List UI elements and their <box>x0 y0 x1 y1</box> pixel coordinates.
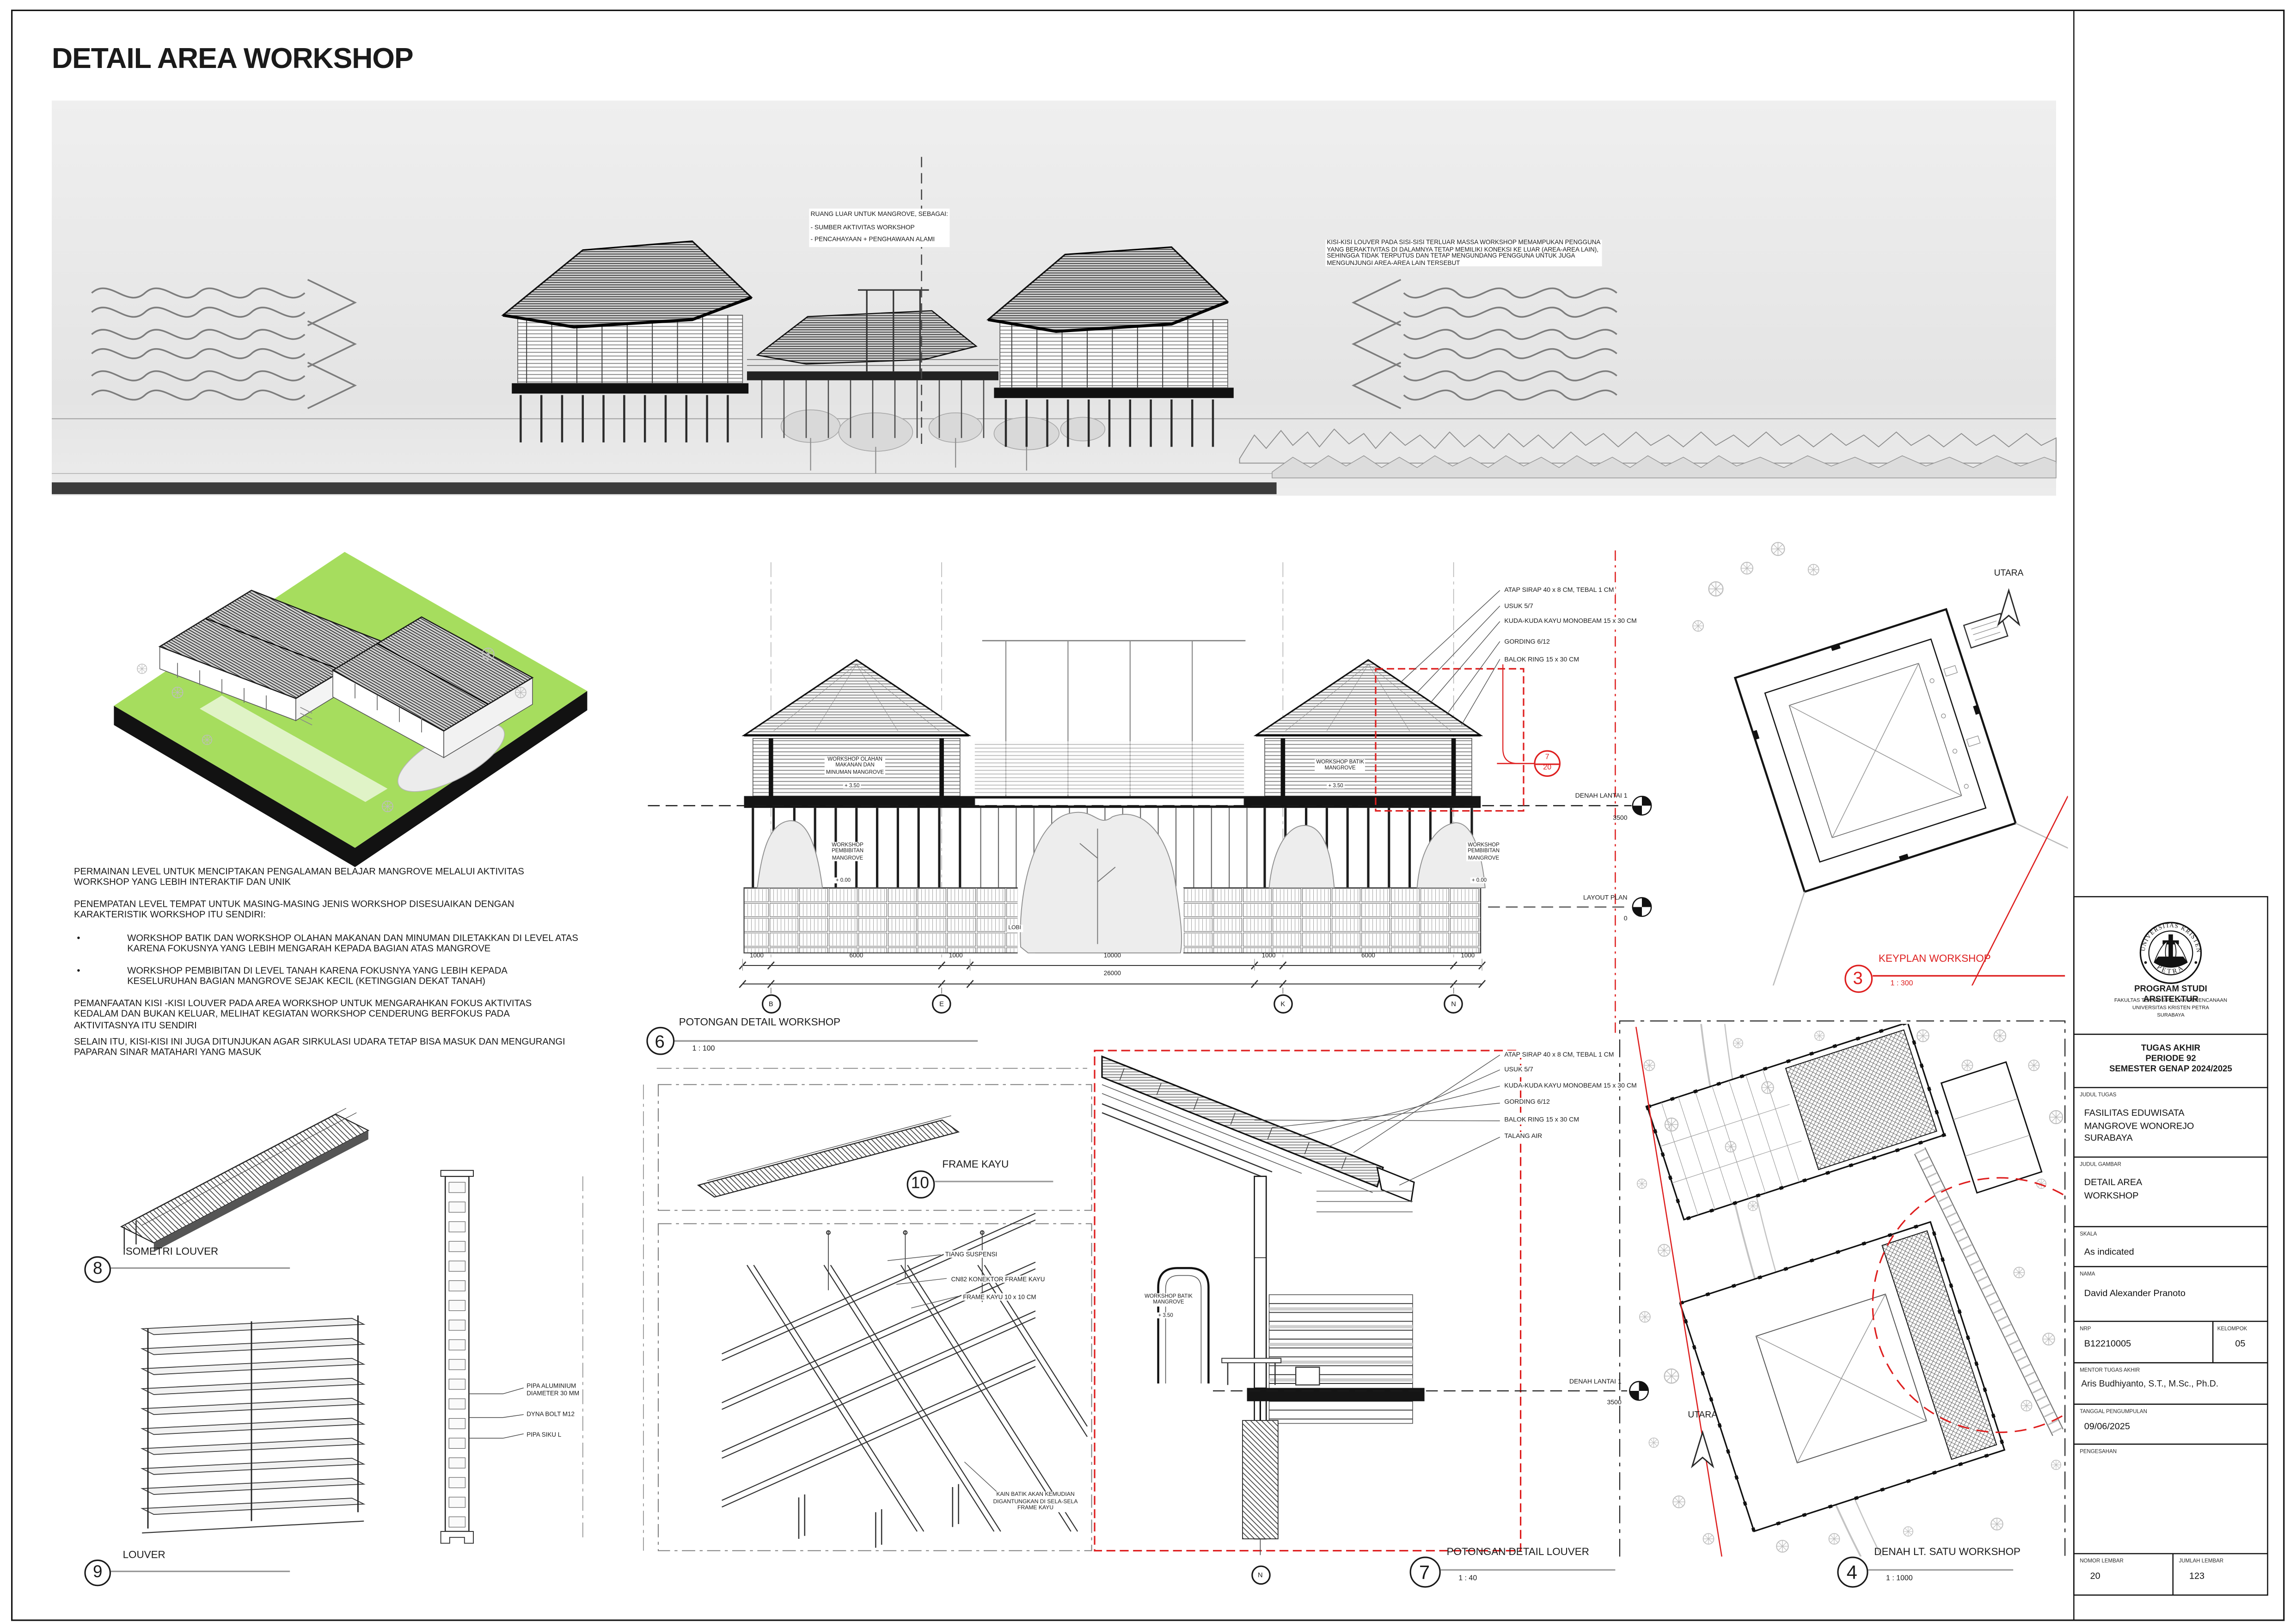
north-label: UTARA <box>1688 1412 1717 1423</box>
skala-label: SKALA <box>2080 1231 2097 1237</box>
siteplan-drawing <box>1619 997 2127 1557</box>
room-label-pembibitan-left: WORKSHOP PEMBIBITAN MANGROVE <box>830 842 865 862</box>
judul-gambar-label: JUDUL GAMBAR <box>2080 1162 2121 1168</box>
detail-annotation: ATAP SIRAP 40 x 8 CM, TEBAL 1 CM <box>1503 1050 1616 1058</box>
dimension-value: 1000 <box>1461 952 1475 959</box>
level-label-layout: LAYOUT PLAN <box>1583 893 1628 901</box>
level-label-denah: DENAH LANTAI 1 <box>1575 792 1628 800</box>
nrp-label: NRP <box>2080 1326 2091 1332</box>
kota: SURABAYA <box>2157 1011 2184 1018</box>
jumlah-lembar-label: JUMLAH LEMBAR <box>2179 1557 2224 1564</box>
louver-section-strip <box>441 1170 524 1543</box>
note-bullet-2: WORKSHOP PEMBIBITAN DI LEVEL TANAH KAREN… <box>127 966 508 988</box>
viewport-title-louver: LOUVER <box>123 1551 165 1564</box>
section-annotation: USUK 5/7 <box>1503 602 1535 610</box>
level-elevation: 3500 <box>1613 813 1627 821</box>
level-value: + 3.50 <box>1157 1312 1175 1319</box>
isometric-view <box>114 552 587 867</box>
annotation-cn82: CN82 KONEKTOR FRAME KAYU <box>949 1275 1046 1283</box>
viewport-title-keyplan: KEYPLAN WORKSHOP <box>1879 954 1991 967</box>
nomor-lembar-value: 20 <box>2090 1571 2100 1583</box>
louver-drawing <box>142 1316 364 1533</box>
viewport-scale-keyplan: 1 : 300 <box>1891 979 1913 989</box>
annotation-tiang-suspensi: TIANG SUSPENSI <box>944 1250 999 1258</box>
level-label-denah: DENAH LANTAI 1 <box>1569 1377 1622 1385</box>
viewport-title-louver-iso: ISOMETRI LOUVER <box>123 1248 219 1260</box>
dimension-value: 1000 <box>1262 952 1276 959</box>
viewport-title-frame: FRAME KAYU <box>942 1160 1009 1173</box>
dimension-value: 6000 <box>1361 952 1375 959</box>
detail-reference-bubble: 7 20 <box>1534 750 1561 777</box>
kelompok-value: 05 <box>2235 1339 2245 1351</box>
kelompok-label: KELOMPOK <box>2217 1326 2247 1332</box>
judul-gambar-value: DETAIL AREA WORKSHOP <box>2084 1178 2142 1203</box>
viewport-scale-detail-louver: 1 : 40 <box>1458 1574 1477 1584</box>
judul-tugas-label: JUDUL TUGAS <box>2080 1092 2116 1099</box>
dimension-total: 26000 <box>1104 969 1121 977</box>
detail-annotation: GORDING 6/12 <box>1503 1098 1551 1106</box>
nama-label: NAMA <box>2080 1271 2095 1278</box>
page-title: DETAIL AREA WORKSHOP <box>52 42 413 78</box>
level-value: + 3.50 <box>843 782 861 788</box>
room-label-lobi: LOBI <box>1007 925 1022 932</box>
note-paragraph-4: SELAIN ITU, KISI-KISI INI JUGA DITUNJUKA… <box>74 1037 565 1059</box>
detail-ref-number: 7 <box>1545 755 1549 763</box>
dimension-value: 6000 <box>850 952 863 959</box>
room-label-olahan: WORKSHOP OLAHAN MAKANAN DAN MINUMAN MANG… <box>825 756 886 776</box>
dimension-value: 1000 <box>949 952 963 959</box>
judul-tugas-value: FASILITAS EDUWISATA MANGROVE WONOREJO SU… <box>2084 1108 2194 1147</box>
annotation-kain-batik: KAIN BATIK AKAN KEMUDIAN DIGANTUNGKAN DI… <box>992 1492 1079 1512</box>
annotation-pipa-aluminium: PIPA ALUMINIUM DIAMETER 30 MM <box>527 1382 579 1398</box>
top-note-left: RUANG LUAR UNTUK MANGROVE, SEBAGAI: - SU… <box>809 209 949 247</box>
note-paragraph-2: PENEMPATAN LEVEL TEMPAT UNTUK MASING-MAS… <box>74 900 514 922</box>
section-annotation: BALOK RING 15 x 30 CM <box>1503 655 1580 663</box>
note-bullet-1: WORKSHOP BATIK DAN WORKSHOP OLAHAN MAKAN… <box>127 934 578 955</box>
tanggal-value: 09/06/2025 <box>2084 1422 2130 1433</box>
tanggal-label: TANGGAL PENGUMPULAN <box>2080 1408 2147 1414</box>
detail-annotation: TALANG AIR <box>1503 1132 1543 1140</box>
petra-logo: UNIVERSITAS KRISTEN PETRA <box>2139 922 2203 983</box>
isometri-louver-drawing <box>121 1108 368 1252</box>
level-value: + 0.00 <box>1470 877 1488 883</box>
mentor-value: Aris Budhiyanto, S.T., M.Sc., Ph.D. <box>2081 1381 2218 1392</box>
section-annotation: KUDA-KUDA KAYU MONOBEAM 15 x 30 CM <box>1503 617 1638 625</box>
sheet-artwork: UNIVERSITAS KRISTEN PETRA <box>0 0 2296 1623</box>
level-elevation: 0 <box>1624 915 1628 923</box>
dimension-value: 10000 <box>1104 952 1121 959</box>
level-elevation: 3500 <box>1607 1398 1622 1407</box>
level-value: + 0.00 <box>834 877 852 883</box>
north-label: UTARA <box>1994 570 2024 581</box>
viewport-title-siteplan: DENAH LT. SATU WORKSHOP <box>1874 1547 2020 1560</box>
room-label-batik-detail: WORKSHOP BATIK MANGROVE <box>1143 1293 1194 1307</box>
bullet-icon: • <box>77 966 80 977</box>
grid-bubble: K <box>1274 994 1293 1013</box>
jumlah-lembar-value: 123 <box>2189 1571 2204 1583</box>
annotation-frame-kayu: FRAME KAYU 10 x 10 CM <box>961 1292 1038 1300</box>
detail-annotation: USUK 5/7 <box>1503 1064 1535 1073</box>
room-label-batik: WORKSHOP BATIK MANGROVE <box>1315 759 1365 773</box>
annotation-dyna-bolt: DYNA BOLT M12 <box>527 1410 575 1418</box>
room-label-pembibitan-right: WORKSHOP PEMBIBITAN MANGROVE <box>1466 842 1501 862</box>
note-paragraph-3: PEMANFAATAN KISI -KISI LOUVER PADA AREA … <box>74 999 532 1032</box>
bullet-icon: • <box>77 934 80 945</box>
nama-value: David Alexander Pranoto <box>2084 1289 2186 1300</box>
viewport-scale-section: 1 : 100 <box>692 1045 715 1054</box>
callout-number-louver-iso: 8 <box>84 1256 111 1283</box>
tugas-akhir-block: TUGAS AKHIR PERIODE 92 SEMESTER GENAP 20… <box>2109 1045 2232 1075</box>
nomor-lembar-label: NOMOR LEMBAR <box>2080 1557 2124 1564</box>
level-value: + 3.50 <box>1327 782 1345 788</box>
mentor-label: MENTOR TUGAS AKHIR <box>2080 1366 2140 1373</box>
fakultas: FAKULTAS TEKNIK SIPIL DAN PERENCANAAN <box>2114 996 2227 1003</box>
universitas: UNIVERSITAS KRISTEN PETRA <box>2132 1004 2209 1010</box>
section-drawing <box>648 550 1652 1041</box>
section-annotation: ATAP SIRAP 40 x 8 CM, TEBAL 1 CM <box>1503 586 1616 594</box>
viewport-title-detail-louver: POTONGAN DETAIL LOUVER <box>1447 1547 1589 1560</box>
callout-number-louver: 9 <box>84 1560 111 1586</box>
detail-ref-sheet: 20 <box>1536 763 1559 773</box>
section-annotation: GORDING 6/12 <box>1503 637 1551 646</box>
annotation-pipa-siku: PIPA SIKU L <box>527 1430 561 1438</box>
nrp-value: B12210005 <box>2084 1339 2131 1351</box>
pengesahan-label: PENGESAHAN <box>2080 1449 2117 1455</box>
top-note-right: KISI-KISI LOUVER PADA SISI-SISI TERLUAR … <box>1325 240 1602 267</box>
detail-annotation: KUDA-KUDA KAYU MONOBEAM 15 x 30 CM <box>1503 1081 1638 1089</box>
skala-value: As indicated <box>2084 1248 2134 1259</box>
note-paragraph-1: PERMAINAN LEVEL UNTUK MENCIPTAKAN PENGAL… <box>74 867 524 889</box>
viewport-title-section: POTONGAN DETAIL WORKSHOP <box>679 1018 840 1031</box>
top-perspective-view <box>52 101 2056 496</box>
dimension-value: 1000 <box>750 952 764 959</box>
detail-annotation: BALOK RING 15 x 30 CM <box>1503 1116 1580 1124</box>
viewport-scale-siteplan: 1 : 1000 <box>1886 1574 1913 1584</box>
drawing-sheet: UNIVERSITAS KRISTEN PETRA DETAIL AREA WO… <box>0 0 2296 1623</box>
